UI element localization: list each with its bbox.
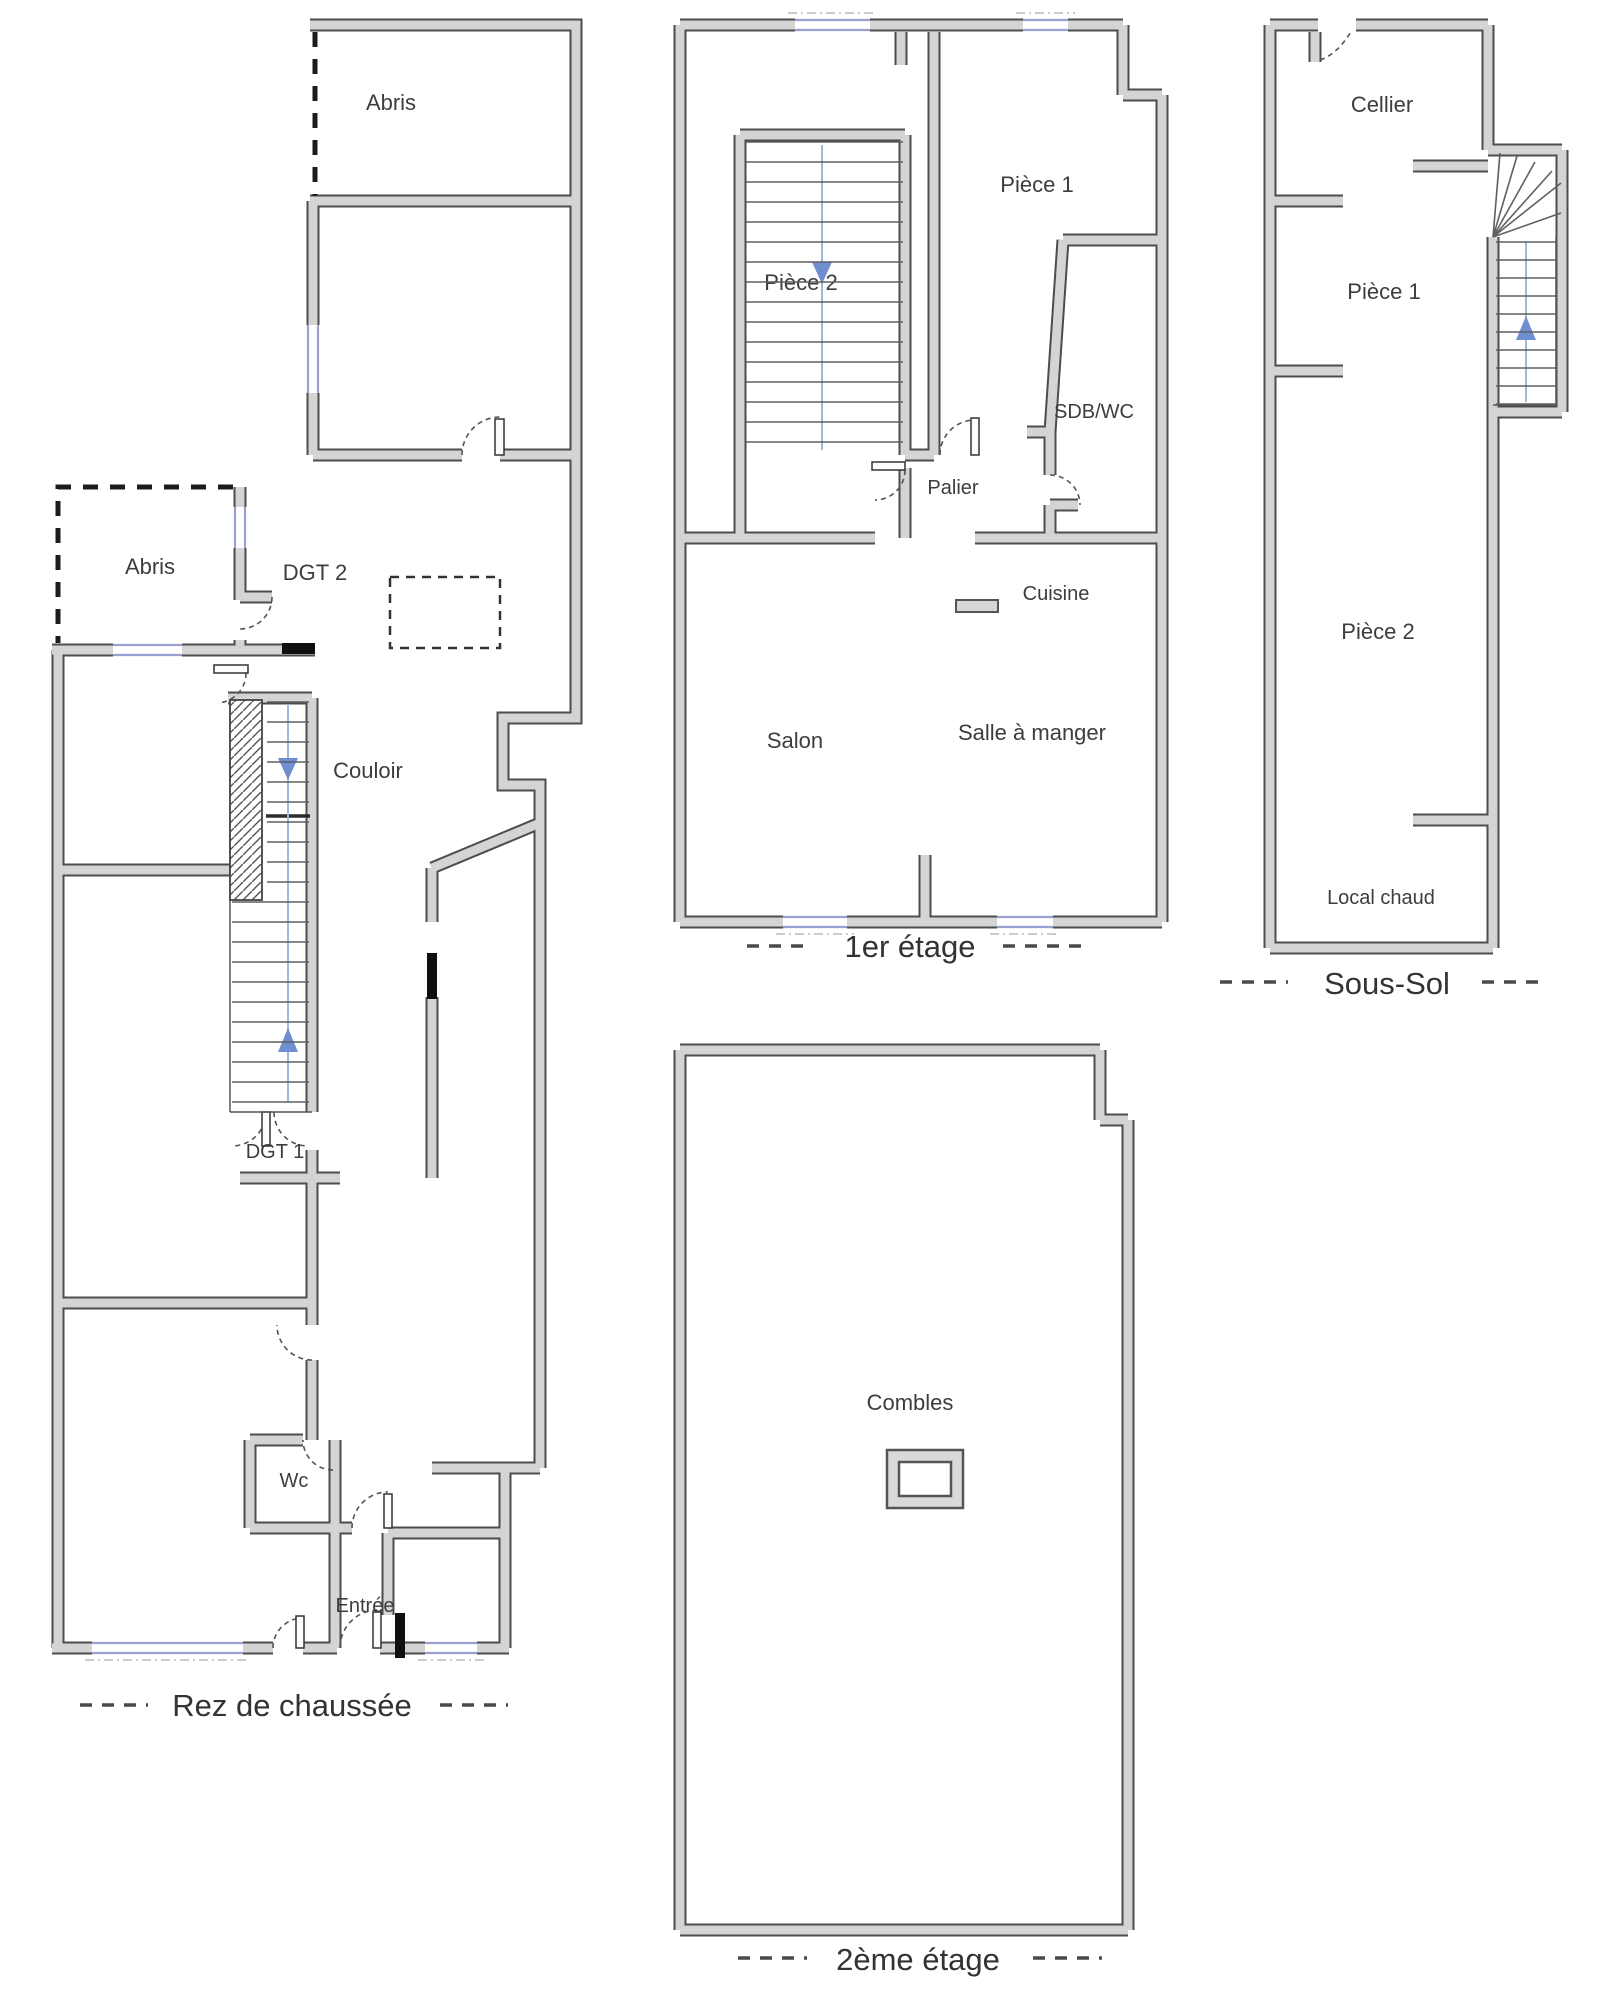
- plan-rez-de-chaussee: Abris Abris DGT 2 Couloir DGT 1 Wc Entré…: [52, 25, 576, 1723]
- rez-title: Rez de chaussée: [80, 1688, 508, 1723]
- etage2-room-labels: Combles: [867, 1390, 954, 1415]
- room-label-cuisine: Cuisine: [1023, 583, 1090, 605]
- floor-title-rez: Rez de chaussée: [172, 1688, 412, 1723]
- sous-sol-title: Sous-Sol: [1220, 966, 1548, 1001]
- room-label-local-chaud: Local chaud: [1327, 887, 1435, 909]
- room-label-abris-top: Abris: [366, 90, 416, 115]
- room-label-piece1: Pièce 1: [1000, 172, 1073, 197]
- plan-sous-sol: Cellier Pièce 1 Pièce 2 Local chaud Sous…: [1220, 25, 1562, 1001]
- rez-stair-hatch: [230, 700, 262, 900]
- stair-arrow-up-icon: [1516, 316, 1536, 340]
- room-label-couloir: Couloir: [333, 758, 403, 783]
- room-label-abris-lower: Abris: [125, 554, 175, 579]
- rez-windows: [85, 325, 484, 1660]
- rez-room-labels: Abris Abris DGT 2 Couloir DGT 1 Wc Entré…: [125, 90, 416, 1617]
- rez-black-door-1: [282, 643, 315, 654]
- room-label-sdb-wc: SDB/WC: [1054, 401, 1134, 423]
- plan-1er-etage: Pièce 2 Pièce 1 SDB/WC Palier Cuisine Sa…: [680, 13, 1162, 964]
- etage2-title: 2ème étage: [738, 1942, 1102, 1977]
- sous-sol-room-labels: Cellier Pièce 1 Pièce 2 Local chaud: [1327, 92, 1435, 909]
- etage1-kitchen-counter: [956, 600, 998, 612]
- etage1-windows: [776, 13, 1075, 934]
- room-label-cellier: Cellier: [1351, 92, 1413, 117]
- floor-plan-sheet: Abris Abris DGT 2 Couloir DGT 1 Wc Entré…: [0, 0, 1600, 2002]
- etage1-room-labels: Pièce 2 Pièce 1 SDB/WC Palier Cuisine Sa…: [764, 172, 1134, 753]
- floor-title-etage1: 1er étage: [845, 929, 976, 964]
- room-label-ss-piece2: Pièce 2: [1341, 619, 1414, 644]
- rez-black-door-3: [395, 1613, 405, 1658]
- etage2-chimney: [887, 1450, 963, 1508]
- room-label-salle-a-manger: Salle à manger: [958, 720, 1106, 745]
- rez-dgt2-dashed-zone: [390, 577, 500, 648]
- rez-black-door-2: [427, 953, 437, 999]
- plan-2eme-etage: Combles 2ème étage: [680, 1050, 1128, 1977]
- floor-plan-drawing: Abris Abris DGT 2 Couloir DGT 1 Wc Entré…: [0, 0, 1600, 2002]
- floor-title-etage2: 2ème étage: [836, 1942, 1000, 1977]
- room-label-entree: Entrée: [336, 1595, 395, 1617]
- room-label-dgt2: DGT 2: [283, 560, 347, 585]
- sous-sol-doors: [1320, 30, 1352, 60]
- room-label-wc: Wc: [280, 1470, 309, 1492]
- etage1-staircase: [812, 145, 832, 450]
- etage1-walls: [680, 25, 1162, 922]
- room-label-combles: Combles: [867, 1390, 954, 1415]
- floor-title-sous-sol: Sous-Sol: [1324, 966, 1450, 1001]
- room-label-ss-piece1: Pièce 1: [1347, 279, 1420, 304]
- room-label-palier: Palier: [927, 477, 978, 499]
- room-label-dgt1: DGT 1: [246, 1141, 305, 1163]
- room-label-salon: Salon: [767, 728, 823, 753]
- rez-property-dashed-lines: [58, 32, 315, 643]
- stair-arrow-up-icon: [278, 1028, 298, 1052]
